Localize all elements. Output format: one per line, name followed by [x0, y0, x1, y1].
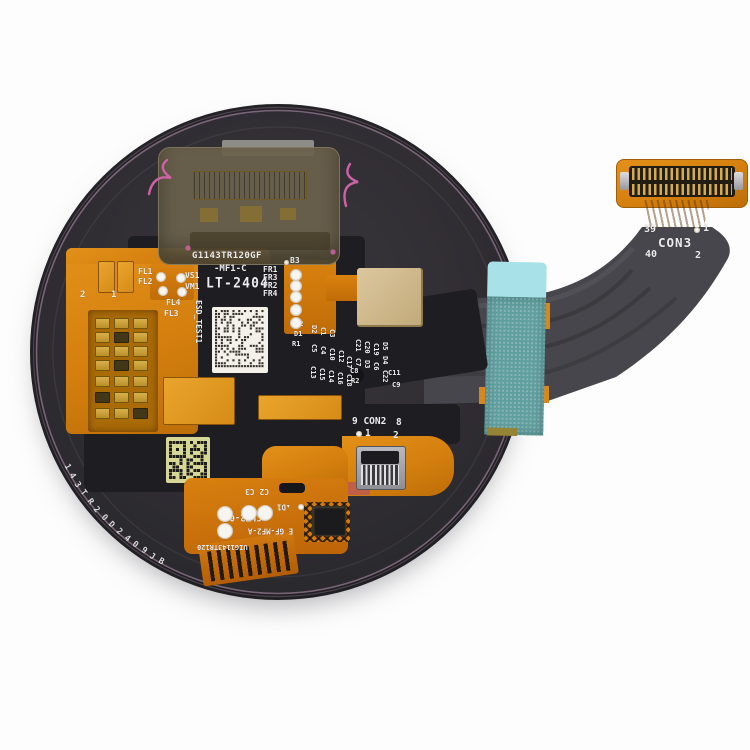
board-marking-label: 2 — [695, 251, 701, 261]
board-marking-label: C12 — [337, 350, 344, 363]
test-pad — [290, 291, 302, 303]
board-marking-label: C21 — [354, 339, 361, 352]
qr-code — [166, 437, 210, 483]
board-marking-label: 40 — [645, 250, 657, 260]
board-marking-label: C20 — [363, 341, 370, 354]
board-marking-label: C7 — [354, 358, 361, 366]
datamatrix-code — [212, 307, 268, 373]
board-marking-label: C9 — [392, 382, 400, 389]
board-marking-label: 9 CON2 — [352, 417, 386, 427]
test-pad — [356, 431, 362, 437]
test-pad — [176, 273, 186, 283]
board-marking-label: LT-2404 — [206, 276, 269, 290]
board-marking-label: C4 — [319, 346, 326, 354]
test-pad — [217, 506, 233, 522]
test-pad — [694, 227, 700, 233]
board-marking-label: FL1 — [138, 268, 152, 276]
board-marking-label: D3 — [363, 360, 370, 368]
board-marking-label: FL2 — [138, 278, 152, 286]
board-marking-label: R2 — [351, 378, 359, 385]
board-marking-label: 1 — [703, 224, 709, 234]
sensor-chip — [312, 506, 346, 536]
board-marking-label: VS1 — [185, 272, 199, 280]
test-pad — [156, 272, 166, 282]
board-marking-label: ▴D1 — [277, 503, 291, 511]
board-marking-label: FL4 — [166, 299, 180, 307]
board-marking-label: 1 — [111, 291, 116, 300]
board-marking-label: G1143TR120GF — [192, 252, 262, 261]
board-marking-label: D1 — [294, 331, 302, 338]
board-marking-label: C22 — [381, 370, 388, 383]
board-marking-label: 2 — [393, 431, 399, 441]
board-marking-label: C6 — [372, 362, 379, 370]
board-marking-label: D2 — [310, 325, 317, 333]
board-marking-label: ESD_TEST1 — [194, 300, 202, 343]
board-marking-label: -MF1-C — [214, 265, 247, 274]
board-marking-label: D4 — [381, 356, 388, 364]
board-marking-label: CON3 — [658, 237, 692, 250]
test-pad — [217, 523, 233, 539]
test-pad — [158, 286, 168, 296]
test-pad — [177, 287, 187, 297]
board-marking-label: 8 — [396, 418, 402, 428]
board-marking-label: 39 — [644, 225, 656, 235]
board-marking-label: C1 — [319, 327, 326, 335]
board-marking-label: UIG1143TR120 — [197, 543, 248, 550]
product-photo: G1143TR120GF-MF1-CLT-2404B3FL1FL2VS1VM1F… — [0, 0, 750, 750]
board-marking-label: E GF-MF2-A — [248, 527, 293, 535]
test-pad — [290, 317, 302, 329]
board-marking-label: VM1 — [185, 283, 199, 291]
datamatrix-label — [212, 307, 268, 373]
con2-pins — [361, 465, 399, 485]
board-marking-label: R1 — [292, 341, 300, 348]
test-pad — [241, 505, 257, 521]
board-marking-label: C3 — [328, 329, 335, 337]
board-marking-label: C2 C3 — [245, 487, 269, 495]
test-pad — [284, 260, 289, 265]
board-marking-label: C5 — [310, 344, 317, 352]
board-marking-label: C8 — [350, 368, 358, 375]
board-marking-label: C10 — [328, 348, 335, 361]
board-marking-label: D5 — [381, 342, 388, 350]
test-pad — [298, 504, 304, 510]
board-marking-label: 2 — [80, 291, 85, 300]
con2-connector — [356, 446, 406, 490]
board-marking-label: C16 — [336, 372, 343, 385]
test-pad — [290, 304, 302, 316]
board-marking-label: C15 — [318, 368, 325, 381]
board-marking-label: C14 — [327, 370, 334, 383]
board-marking-label: FR4 — [263, 290, 277, 298]
test-pad — [257, 505, 273, 521]
flex-slot — [279, 483, 305, 493]
pink-wires — [0, 0, 750, 750]
board-marking-label: B3 — [290, 257, 300, 265]
board-marking-label: C11 — [388, 370, 401, 377]
board-marking-label: 1 — [365, 429, 371, 439]
board-marking-label: C13 — [309, 366, 316, 379]
board-marking-label: C19 — [372, 343, 379, 356]
board-marking-label: FL3 — [164, 310, 178, 318]
